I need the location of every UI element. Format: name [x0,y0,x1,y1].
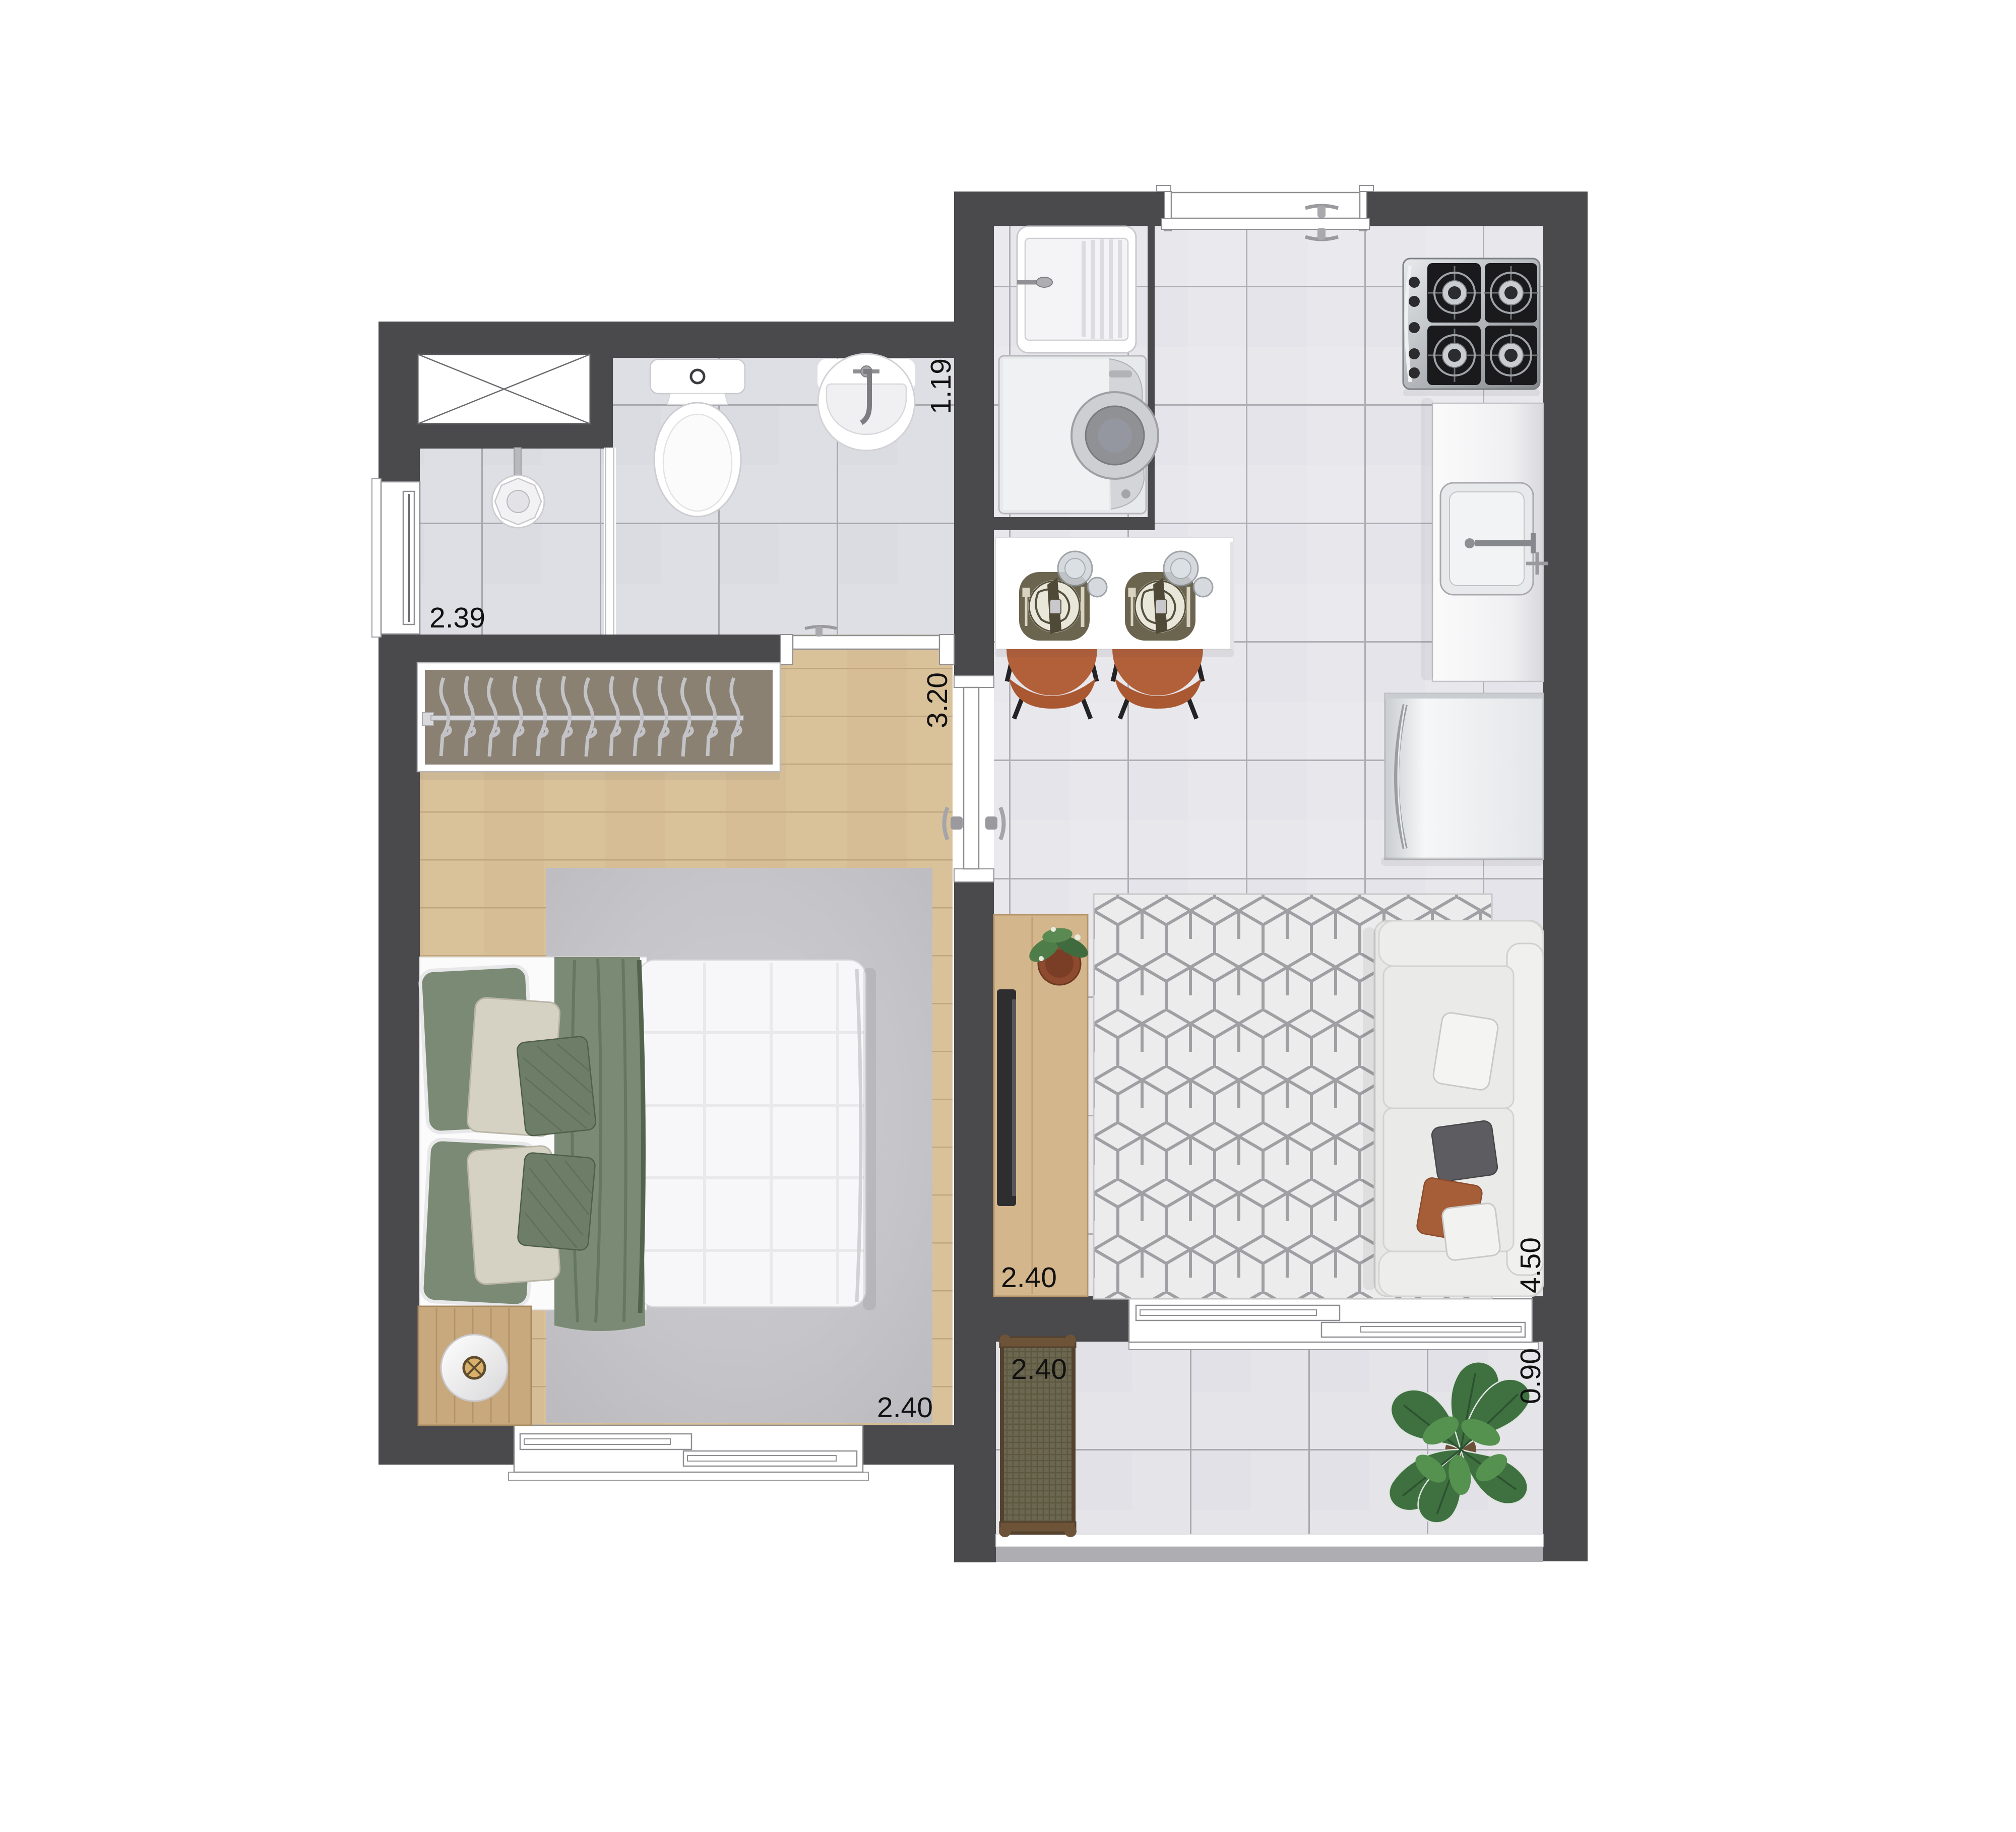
svg-text:2.40: 2.40 [1011,1353,1067,1385]
svg-text:1.19: 1.19 [925,358,957,414]
svg-text:2.40: 2.40 [877,1392,933,1424]
svg-text:3.20: 3.20 [921,672,954,728]
svg-text:2.40: 2.40 [1001,1261,1057,1294]
svg-text:0.90: 0.90 [1515,1348,1547,1404]
svg-text:2.39: 2.39 [429,602,485,634]
svg-text:4.50: 4.50 [1515,1237,1547,1293]
